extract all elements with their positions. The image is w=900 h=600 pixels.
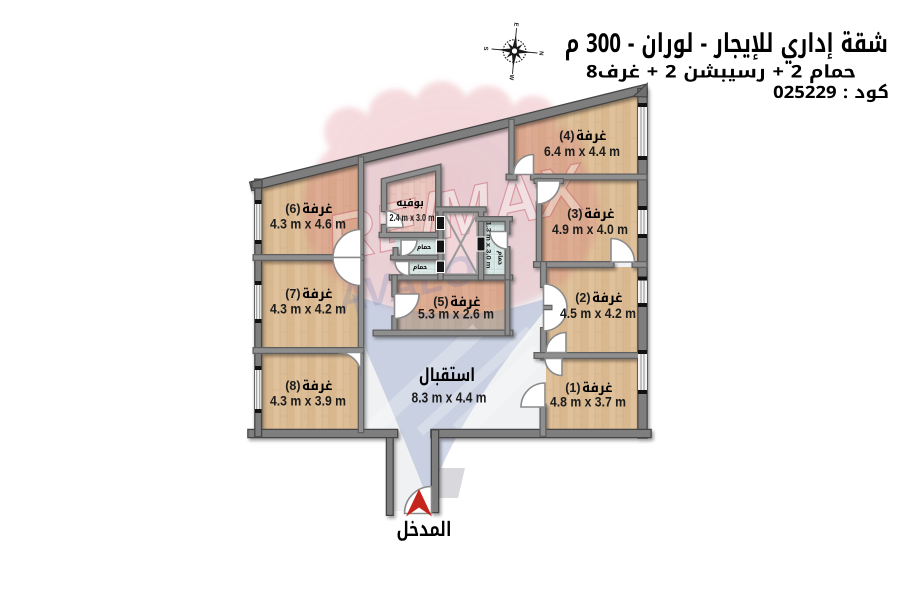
svg-text:8.3 m x 4.4 m: 8.3 m x 4.4 m (412, 391, 487, 407)
svg-text:5.3 m x 2.6 m: 5.3 m x 2.6 m (418, 307, 494, 322)
svg-text:(2): (2) (575, 291, 590, 305)
svg-text:1.3 m x 3.0 m: 1.3 m x 3.0 m (485, 222, 492, 269)
svg-text:(1): (1) (565, 381, 580, 395)
svg-text:(4): (4) (559, 129, 574, 143)
svg-text:E: E (512, 22, 518, 27)
svg-text:N: N (537, 51, 543, 56)
svg-text:(3): (3) (567, 207, 582, 221)
svg-text:4.8 m x 3.7 m: 4.8 m x 3.7 m (550, 395, 626, 410)
svg-text:S: S (482, 46, 488, 51)
svg-text:4.3 m x 3.9 m: 4.3 m x 3.9 m (270, 394, 346, 409)
svg-text:(8): (8) (285, 379, 300, 393)
svg-text:4.3 m x 4.2 m: 4.3 m x 4.2 m (270, 302, 346, 317)
svg-text:2.4 m x 3.0 m: 2.4 m x 3.0 m (390, 213, 435, 224)
svg-text:(7): (7) (285, 287, 300, 301)
svg-text:4.3 m x 4.6 m: 4.3 m x 4.6 m (270, 217, 346, 232)
svg-text:4.5 m x 4.2 m: 4.5 m x 4.2 m (560, 306, 636, 321)
svg-text:4.9 m x 4.0 m: 4.9 m x 4.0 m (552, 222, 628, 237)
svg-text:W: W (507, 74, 514, 81)
svg-text:(6): (6) (285, 202, 300, 216)
svg-text:6.4 m x 4.4 m: 6.4 m x 4.4 m (544, 144, 620, 159)
